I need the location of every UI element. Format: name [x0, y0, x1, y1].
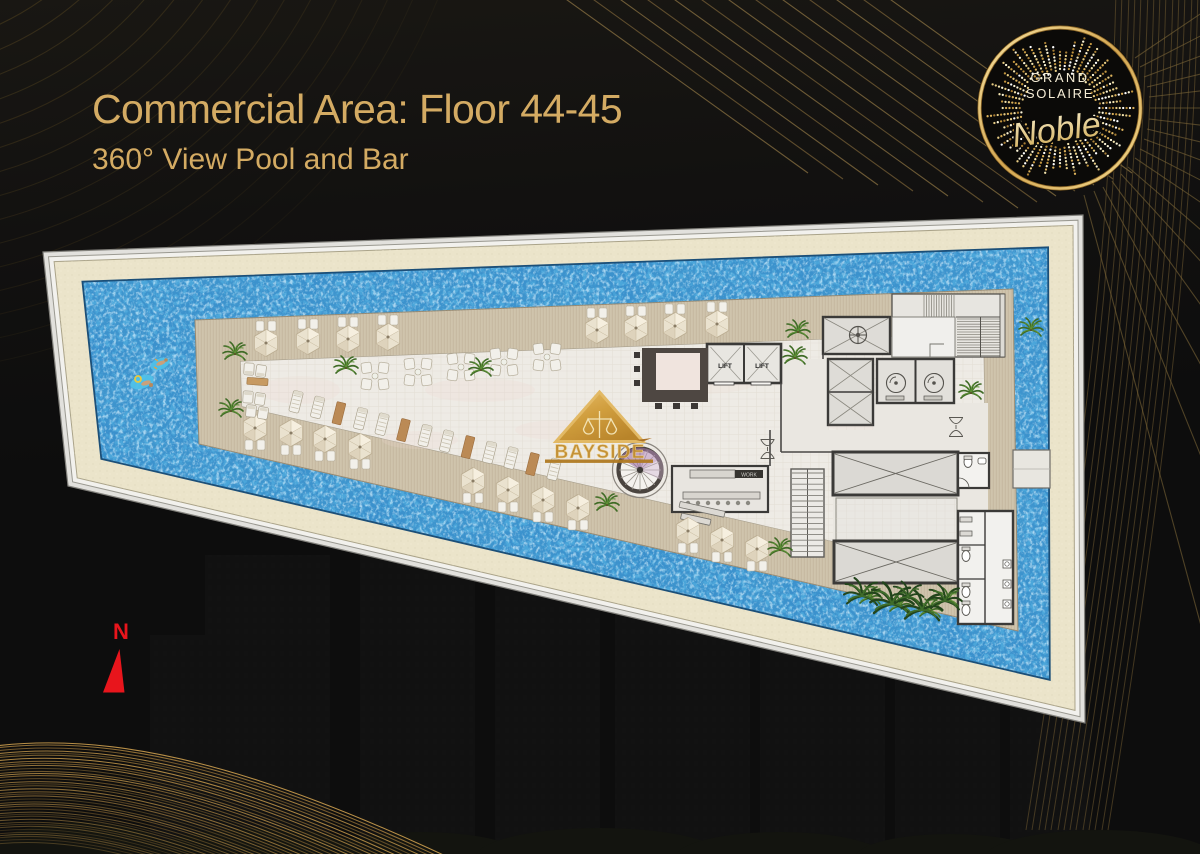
svg-text:WORK: WORK — [741, 473, 757, 479]
svg-text:LIFT: LIFT — [755, 363, 769, 370]
svg-text:GRAND: GRAND — [1031, 70, 1090, 85]
svg-text:SOLAIRE: SOLAIRE — [1026, 86, 1094, 101]
svg-text:LIFT: LIFT — [718, 363, 732, 370]
svg-text:Commercial Area: Floor 44-45: Commercial Area: Floor 44-45 — [92, 86, 622, 132]
svg-text:N: N — [113, 619, 129, 644]
svg-text:360° View Pool and Bar: 360° View Pool and Bar — [92, 143, 409, 176]
